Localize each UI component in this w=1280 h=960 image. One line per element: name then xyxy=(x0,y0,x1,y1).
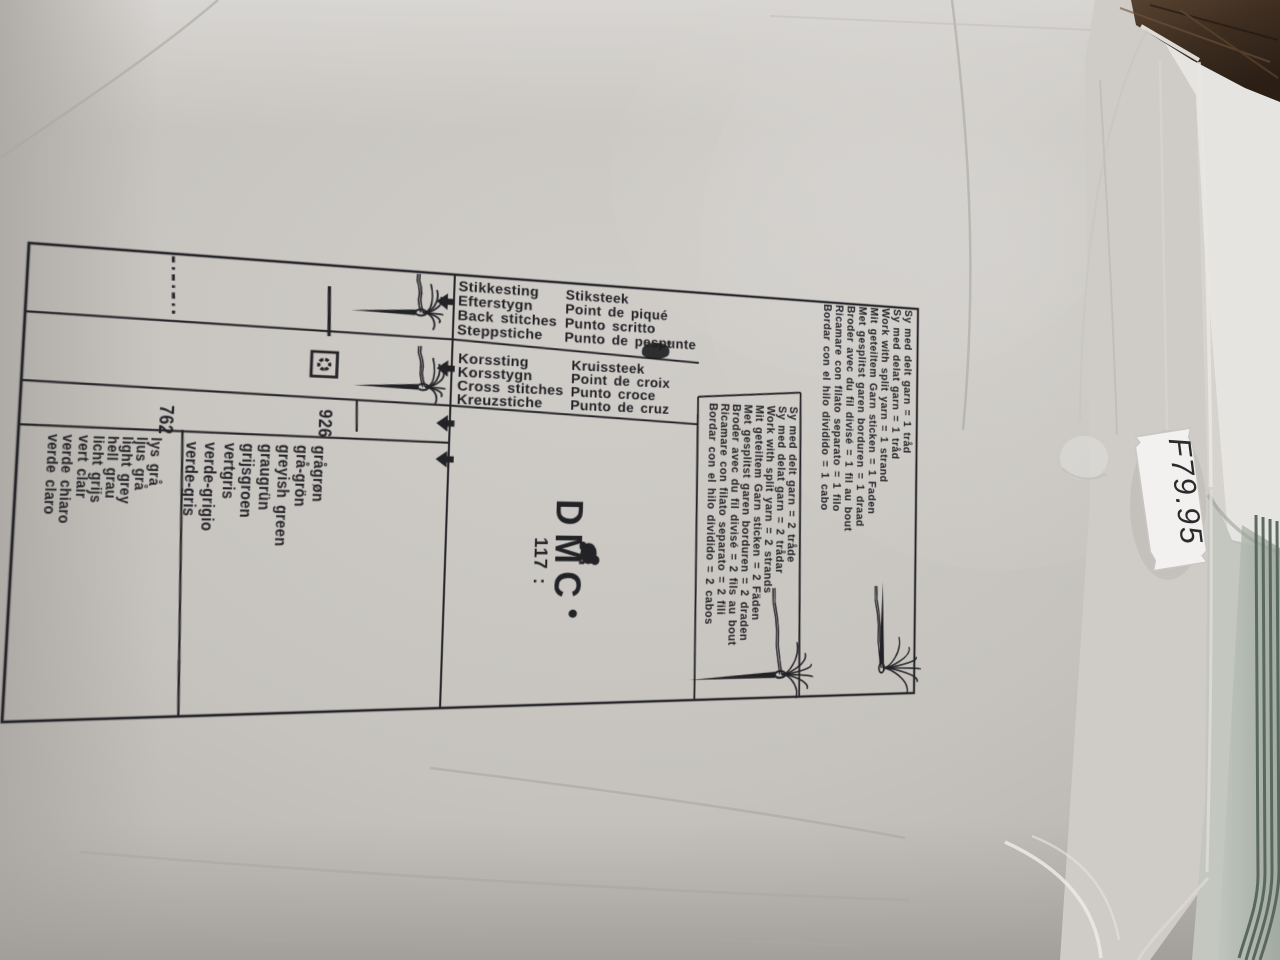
svg-text:vertgris: vertgris xyxy=(218,442,239,499)
svg-text:Work with split yarn = 1 stran: Work with split yarn = 1 strand xyxy=(877,308,890,483)
svg-text:Punto de cruz: Punto de cruz xyxy=(570,397,669,417)
svg-text:117 :: 117 : xyxy=(529,537,551,585)
svg-text:verde-gris: verde-gris xyxy=(179,441,202,516)
svg-text:Mit geteiltem Garn sticken = 1: Mit geteiltem Garn sticken = 1 Faden xyxy=(865,307,878,514)
svg-text:grijsgroen: grijsgroen xyxy=(235,443,257,518)
svg-text:grå-grön: grå-grön xyxy=(290,445,311,507)
svg-text:Punto de pespunte: Punto de pespunte xyxy=(564,330,696,353)
svg-text:Sy med delt garn = 2 tråde: Sy med delt garn = 2 tråde xyxy=(784,406,799,562)
svg-text:Sy med delt garn = 1 tråd: Sy med delt garn = 1 tråd xyxy=(901,310,914,454)
svg-text:762: 762 xyxy=(155,405,177,435)
svg-text:graugrün: graugrün xyxy=(254,444,275,511)
svg-text:926: 926 xyxy=(314,409,334,438)
svg-text:grågrøn: grågrøn xyxy=(309,445,329,502)
